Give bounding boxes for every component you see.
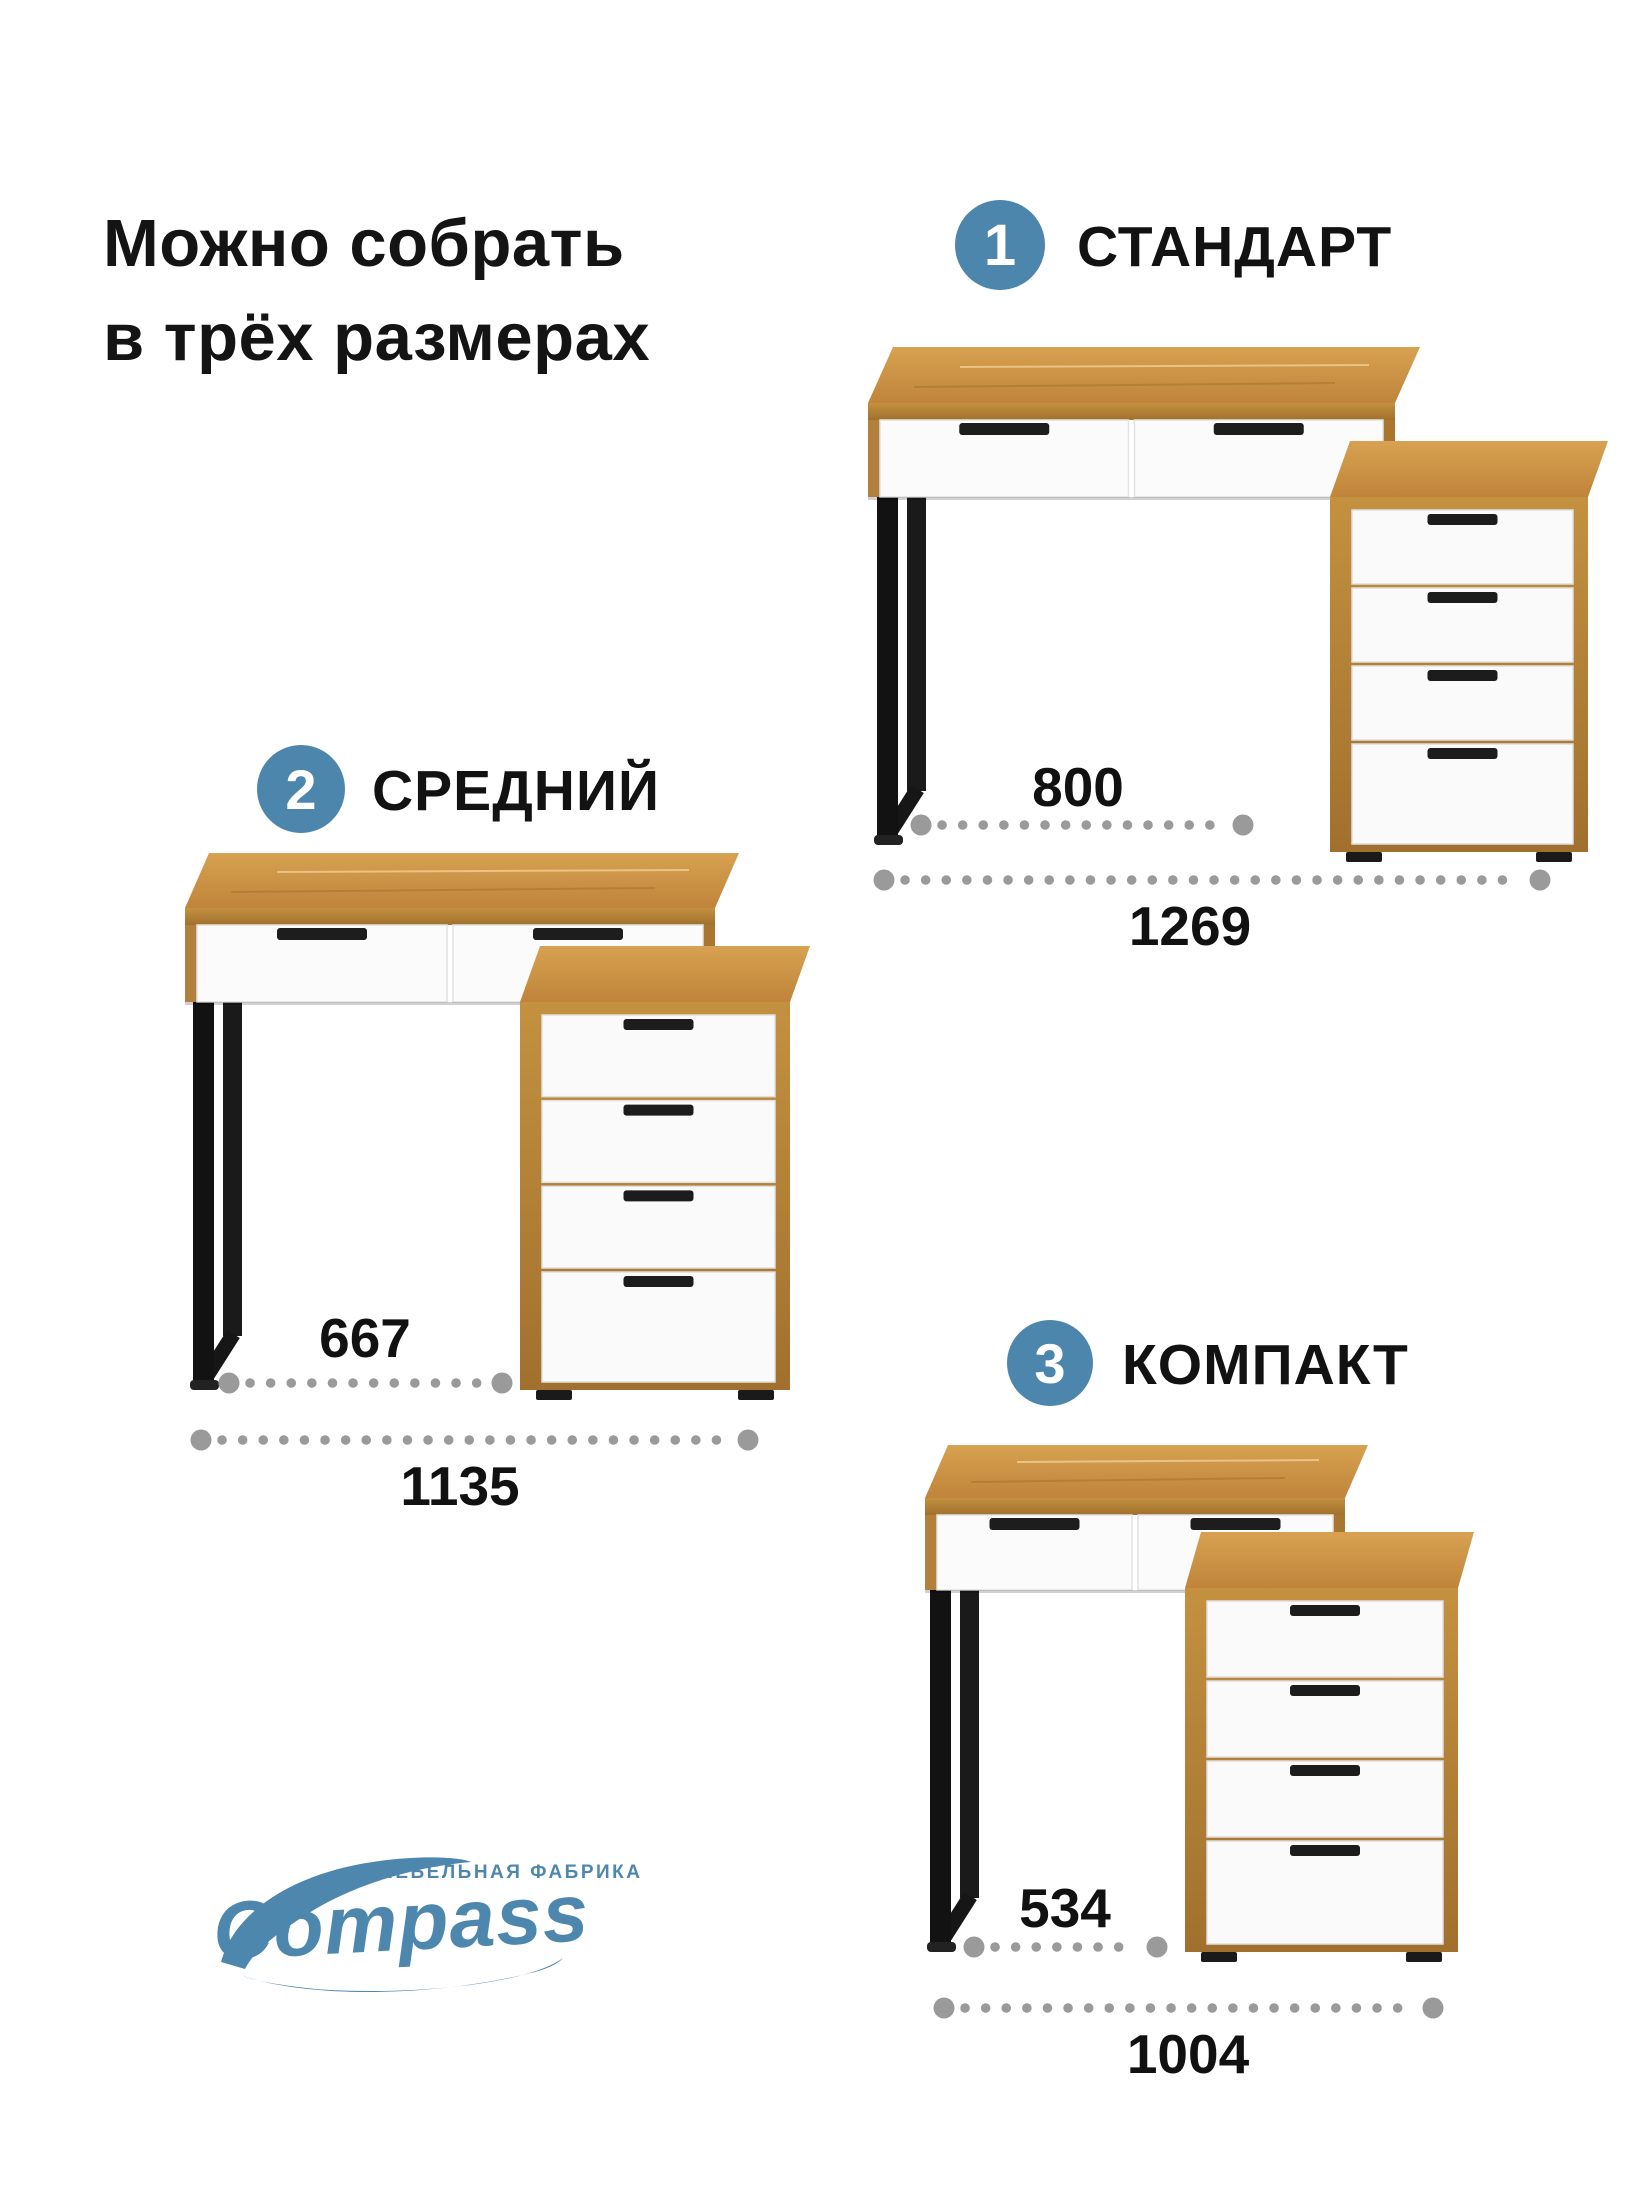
variant-2-number: 2 [285, 757, 316, 822]
desk-illustration-standart [860, 330, 1620, 875]
desk-width-dimline-3 [963, 1936, 1168, 1958]
desk-width-dimline-2 [218, 1372, 513, 1394]
page-title: Можно собрать в трёх размерах [103, 197, 650, 385]
infographic-canvas: Можно собрать в трёх размерах 1 СТАНДАРТ… [0, 0, 1650, 2200]
total-width-dimline-3 [933, 1997, 1444, 2019]
desk-illustration-sredniy [175, 840, 815, 1410]
total-width-label-1: 1269 [1040, 896, 1340, 957]
logo-brand: Compass [211, 1866, 592, 1980]
total-width-dimline-1 [873, 869, 1551, 891]
variant-3-label: КОМПАКТ [1122, 1332, 1409, 1398]
desk-width-label-2: 667 [285, 1308, 445, 1369]
desk-width-label-3: 534 [985, 1878, 1145, 1939]
variant-2-badge: 2 [257, 745, 345, 833]
variant-1-badge: 1 [955, 200, 1045, 290]
variant-1-number: 1 [984, 212, 1016, 279]
variant-3-number: 3 [1034, 1331, 1065, 1396]
total-width-label-3: 1004 [1038, 2024, 1338, 2085]
title-line-2: в трёх размерах [103, 291, 650, 385]
total-width-label-2: 1135 [310, 1456, 610, 1517]
total-width-dimline-2 [190, 1429, 759, 1451]
variant-3-badge: 3 [1007, 1320, 1093, 1406]
variant-1-label: СТАНДАРТ [1077, 214, 1392, 280]
desk-width-label-1: 800 [998, 757, 1158, 818]
variant-2-label: СРЕДНИЙ [372, 758, 660, 824]
title-line-1: Можно собрать [103, 197, 650, 291]
compass-logo: МЕБЕЛЬНАЯ ФАБРИКА Compass [205, 1850, 575, 2005]
desk-width-dimline-1 [910, 814, 1254, 836]
